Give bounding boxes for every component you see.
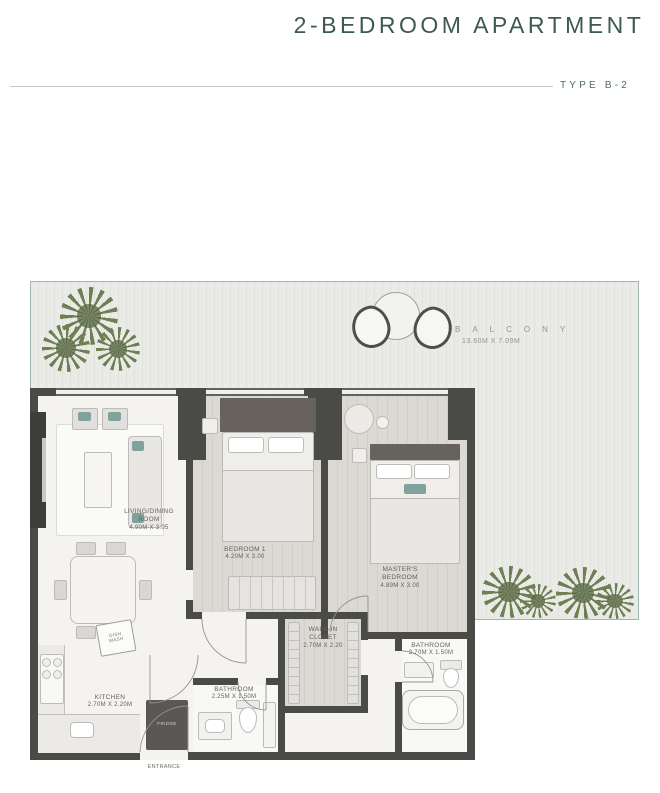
- pillow: [228, 437, 264, 453]
- bed-blanket: [222, 470, 314, 542]
- burner: [53, 658, 62, 667]
- wall: [266, 678, 278, 685]
- divider-line: [10, 86, 553, 87]
- sink: [205, 719, 225, 733]
- nightstand: [202, 418, 218, 434]
- window: [56, 388, 176, 396]
- wall: [368, 632, 467, 639]
- bathtub-basin: [408, 696, 458, 724]
- kitchen-label: KITCHEN 2.70M X 2.20M: [70, 694, 150, 710]
- bed-cushion: [404, 484, 426, 494]
- lounge-chair: [344, 404, 374, 434]
- tv-screen: [42, 438, 46, 502]
- plant: [596, 583, 634, 619]
- dresser: [228, 576, 316, 610]
- walkin-closet-label: WALK-IN CLOSET 2.70M X 2.20: [287, 626, 359, 651]
- kitchen-sink: [70, 722, 94, 738]
- wall: [186, 612, 202, 619]
- coffee-table: [84, 452, 112, 508]
- floorplan-page: 2-BEDROOM APARTMENT TYPE B-2 BALCONY 13.…: [0, 0, 660, 793]
- nightstand: [352, 448, 367, 463]
- balcony-label: BALCONY: [455, 325, 577, 334]
- burner: [42, 670, 51, 679]
- wall-column: [448, 396, 467, 440]
- window: [342, 388, 448, 396]
- dining-table: [70, 556, 136, 624]
- wall: [361, 619, 368, 640]
- plant: [520, 584, 556, 618]
- burner: [42, 658, 51, 667]
- living-room-label: LIVING/DINING ROOM 4.90M X 3.05: [106, 508, 192, 533]
- sink-vanity: [404, 662, 434, 678]
- bedroom1-label: BEDROOM 1 4.20M X 3.00: [200, 546, 290, 562]
- wall: [30, 752, 140, 760]
- wall: [467, 388, 475, 760]
- bed-headboard: [370, 444, 460, 460]
- armchair-cushion: [108, 412, 121, 421]
- wall: [285, 706, 368, 713]
- side-table: [376, 416, 389, 429]
- wall: [278, 619, 285, 752]
- dining-chair: [76, 626, 96, 639]
- armchair-cushion: [78, 412, 91, 421]
- bathroom2-label: BATHROOM 2.25M X 1.50M: [196, 686, 272, 702]
- pillow: [268, 437, 304, 453]
- dining-chair: [139, 580, 152, 600]
- wall: [193, 678, 238, 685]
- dining-chair: [54, 580, 67, 600]
- fridge: FRIDGE: [146, 700, 188, 750]
- shower: [263, 702, 276, 748]
- plant: [42, 324, 90, 372]
- master-bathroom-label: BATHROOM 2.70M X 1.50M: [399, 642, 463, 658]
- dining-chair: [76, 542, 96, 555]
- balcony-dims: 13.60M X 7.09M: [462, 338, 520, 345]
- bed-headboard: [220, 398, 316, 432]
- wall: [395, 682, 402, 752]
- pillow: [376, 464, 412, 479]
- bed-blanket: [370, 498, 460, 564]
- type-label: TYPE B-2: [560, 80, 660, 91]
- dishwasher-label: DISH WASH: [98, 629, 133, 645]
- wall: [176, 388, 206, 396]
- wall: [188, 752, 475, 760]
- wall: [246, 612, 368, 619]
- dishwasher: DISH WASH: [95, 619, 136, 657]
- window: [206, 388, 304, 396]
- dining-chair: [106, 542, 126, 555]
- fridge-label: FRIDGE: [146, 721, 188, 726]
- plant: [96, 327, 140, 371]
- entrance-label: ENTRANCE: [134, 764, 194, 771]
- master-bedroom-label: MASTER'S BEDROOM 4.89M X 3.00: [355, 566, 445, 591]
- burner: [53, 670, 62, 679]
- page-title: 2-BEDROOM APARTMENT: [283, 12, 655, 39]
- pillow: [414, 464, 450, 479]
- wall: [304, 388, 342, 396]
- sofa-pillow: [132, 441, 144, 451]
